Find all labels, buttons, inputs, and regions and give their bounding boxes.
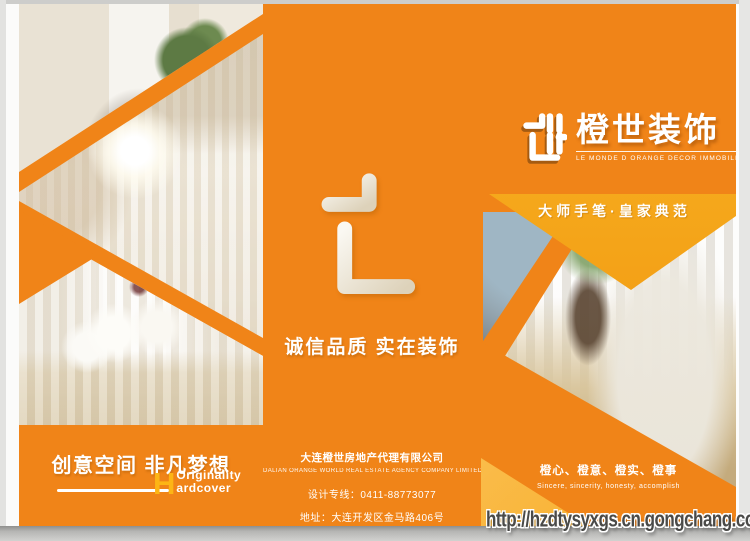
- company-phone: 设计专线：0411-88773077: [263, 486, 481, 501]
- brochure-canvas: 创意空间 非凡梦想 H Originality ardcover: [0, 0, 750, 541]
- shi-monogram-small-icon: [521, 112, 567, 163]
- values-cn: 橙心、橙意、橙实、橙事: [481, 462, 736, 478]
- frame-right-inner: [736, 4, 739, 526]
- cover-tagline: 大师手笔·皇家典范: [481, 201, 736, 221]
- center-slogan: 诚信品质 实在装饰: [263, 332, 481, 359]
- panel-left: 创意空间 非凡梦想 H Originality ardcover: [19, 4, 263, 526]
- brand-logo-row: 橙世装饰 LE MONDE D ORANGE DECOR IMMOBILIER: [521, 112, 736, 163]
- panel-center: 诚信品质 实在装饰 大连橙世房地产代理有限公司 DALIAN ORANGE WO…: [263, 4, 481, 526]
- company-address: 地址：大连开发区金马路406号: [263, 509, 481, 524]
- frame-right-outer: [739, 0, 750, 541]
- shi-monogram-logo-icon: [315, 162, 433, 308]
- panel-right: 大师手笔·皇家典范 橙心、橙意、橙实、橙事 Sincere, sincerity…: [481, 4, 736, 526]
- wordmark-initial: H: [153, 469, 175, 499]
- company-block: 大连橙世房地产代理有限公司 DALIAN ORANGE WORLD REAL E…: [263, 450, 481, 524]
- company-name-en: DALIAN ORANGE WORLD REAL ESTATE AGENCY C…: [263, 468, 481, 474]
- left-bottom-band: 创意空间 非凡梦想 H Originality ardcover: [19, 425, 263, 526]
- values-block: 橙心、橙意、橙实、橙事 Sincere, sincerity, honesty,…: [481, 462, 736, 490]
- company-name: 大连橙世房地产代理有限公司: [263, 450, 481, 465]
- values-en: Sincere, sincerity, honesty, accomplish: [481, 483, 736, 490]
- brand-subtitle: LE MONDE D ORANGE DECOR IMMOBILIER: [576, 151, 736, 162]
- frame-left-inner: [6, 4, 19, 526]
- brand-text: 橙世装饰 LE MONDE D ORANGE DECOR IMMOBILIER: [576, 112, 736, 162]
- watermark-url-link[interactable]: http://hzdtysyxgs.cn.gongchang.com: [486, 507, 750, 533]
- brand-name: 橙世装饰: [576, 112, 736, 148]
- wordmark-line2: ardcover: [176, 482, 241, 495]
- left-english-wordmark: H Originality ardcover: [153, 469, 241, 499]
